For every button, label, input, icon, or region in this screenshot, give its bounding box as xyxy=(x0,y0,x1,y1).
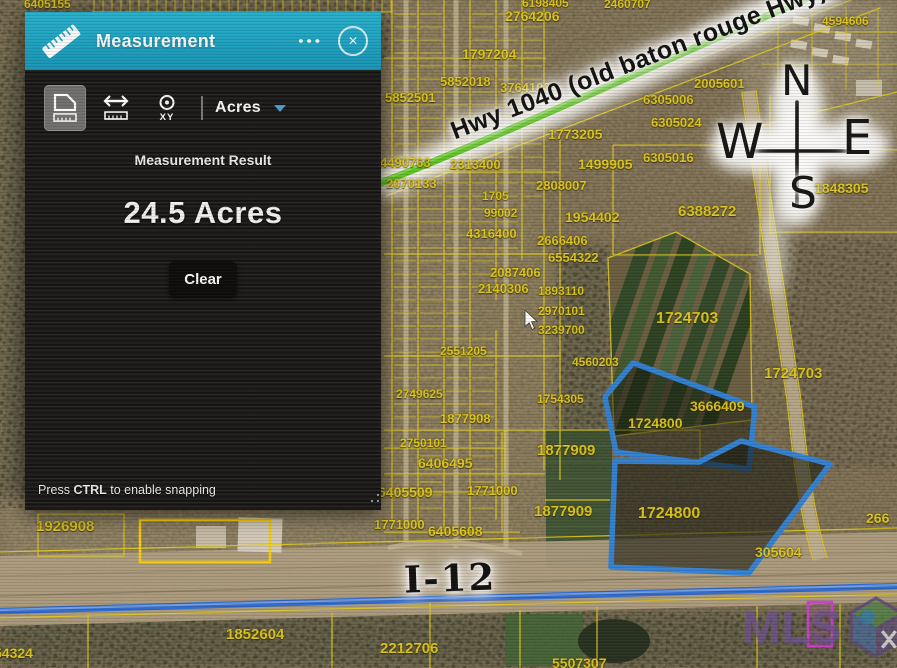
panel-close-button[interactable]: ✕ xyxy=(338,26,368,56)
area-polygon-icon xyxy=(52,93,78,123)
location-xy-button[interactable]: XY xyxy=(146,85,188,131)
ruler-icon xyxy=(38,24,84,58)
measurement-panel-header: Measurement ••• ✕ xyxy=(25,12,381,70)
chevron-down-icon xyxy=(274,105,286,112)
panel-title: Measurement xyxy=(96,31,298,52)
panel-resize-handle[interactable] xyxy=(371,500,373,502)
measurement-result-value: 24.5 Acres xyxy=(25,195,381,231)
panel-menu-button[interactable]: ••• xyxy=(298,33,323,50)
magenta-parcel xyxy=(808,602,832,646)
distance-arrows-icon xyxy=(102,93,130,123)
map-application: 6405155619840524607072764206459460617972… xyxy=(0,0,897,668)
measurement-result-label: Measurement Result xyxy=(25,152,381,168)
measurement-toolbar: XY Acres xyxy=(25,70,381,131)
measurement-panel-body: XY Acres Measurement Result 24.5 Acres C… xyxy=(25,70,381,510)
snapping-hint: Press CTRL to enable snapping xyxy=(38,483,216,497)
clear-button[interactable]: Clear xyxy=(169,261,237,298)
unit-dropdown-value: Acres xyxy=(215,99,261,117)
measurement-panel: Measurement ••• ✕ xyxy=(25,12,381,510)
toolbar-divider xyxy=(201,96,203,120)
ctrl-key-label: CTRL xyxy=(73,483,106,497)
distance-measure-button[interactable] xyxy=(95,85,137,131)
location-crosshair-icon xyxy=(156,94,178,111)
unit-dropdown[interactable]: Acres xyxy=(215,99,286,117)
xy-label: XY xyxy=(160,112,175,123)
area-measure-button[interactable] xyxy=(44,85,86,131)
